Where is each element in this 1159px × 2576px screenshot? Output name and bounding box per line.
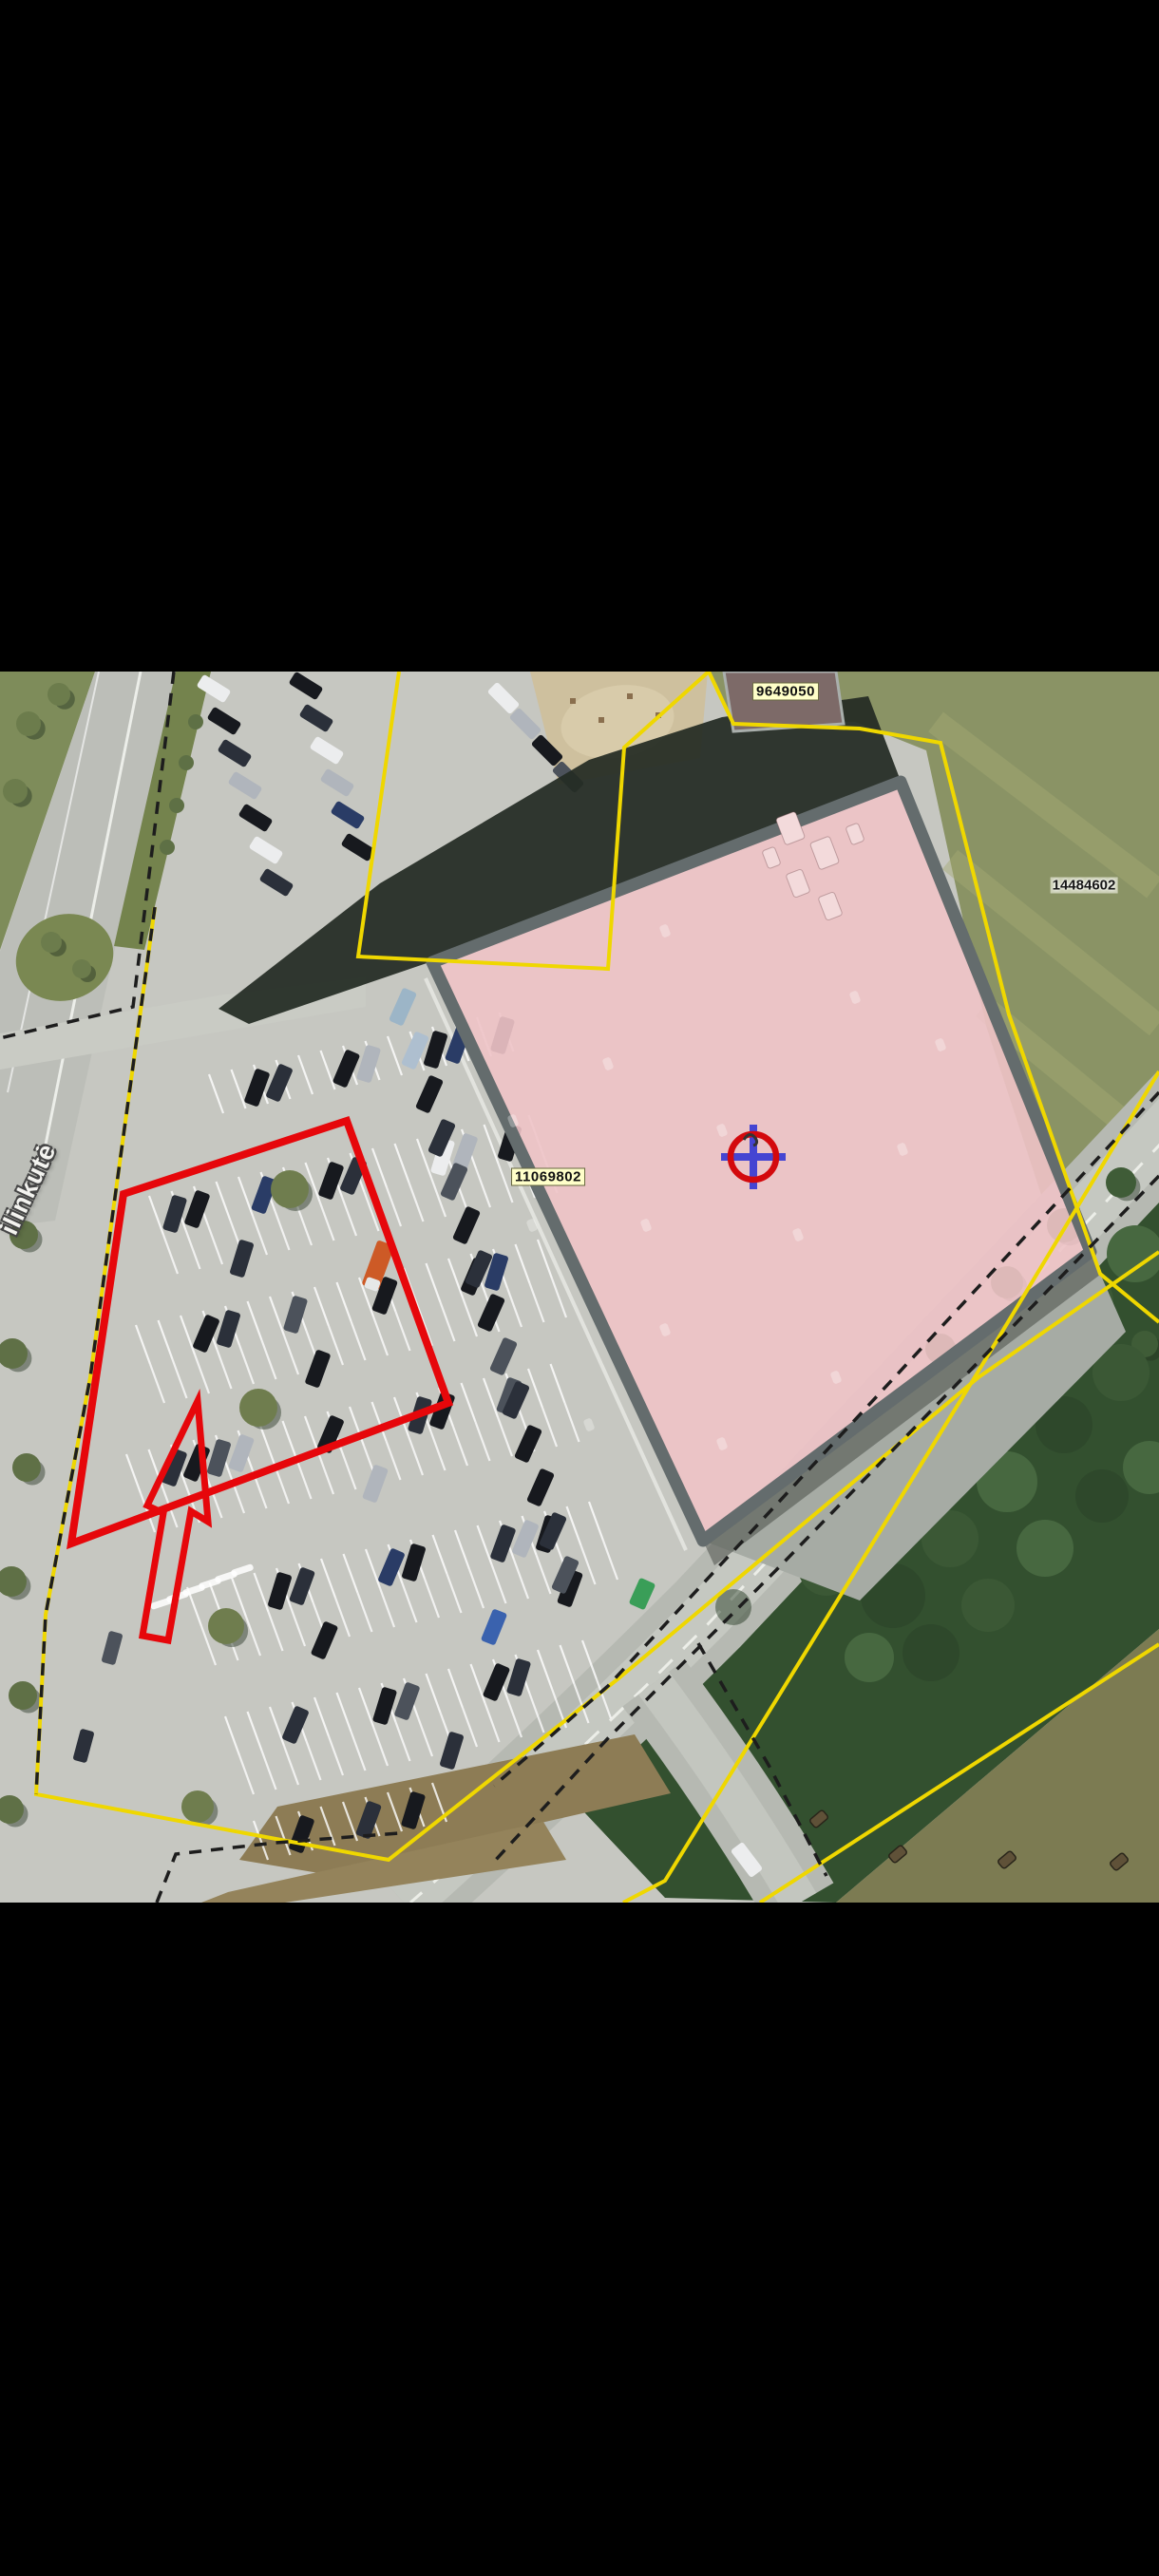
map-canvas <box>0 672 1159 1903</box>
bottom-letterbox <box>0 1903 1159 2576</box>
screenshot-root: 9649050 14484602 11069802 ilinkutė <box>0 0 1159 2576</box>
aerial-map-viewport[interactable]: 9649050 14484602 11069802 ilinkutė <box>0 672 1159 1903</box>
top-letterbox <box>0 0 1159 672</box>
parcel-number-label-top: 9649050 <box>752 683 819 701</box>
parcel-number-label-right: 14484602 <box>1051 878 1118 894</box>
parcel-number-label-building: 11069802 <box>511 1168 585 1186</box>
